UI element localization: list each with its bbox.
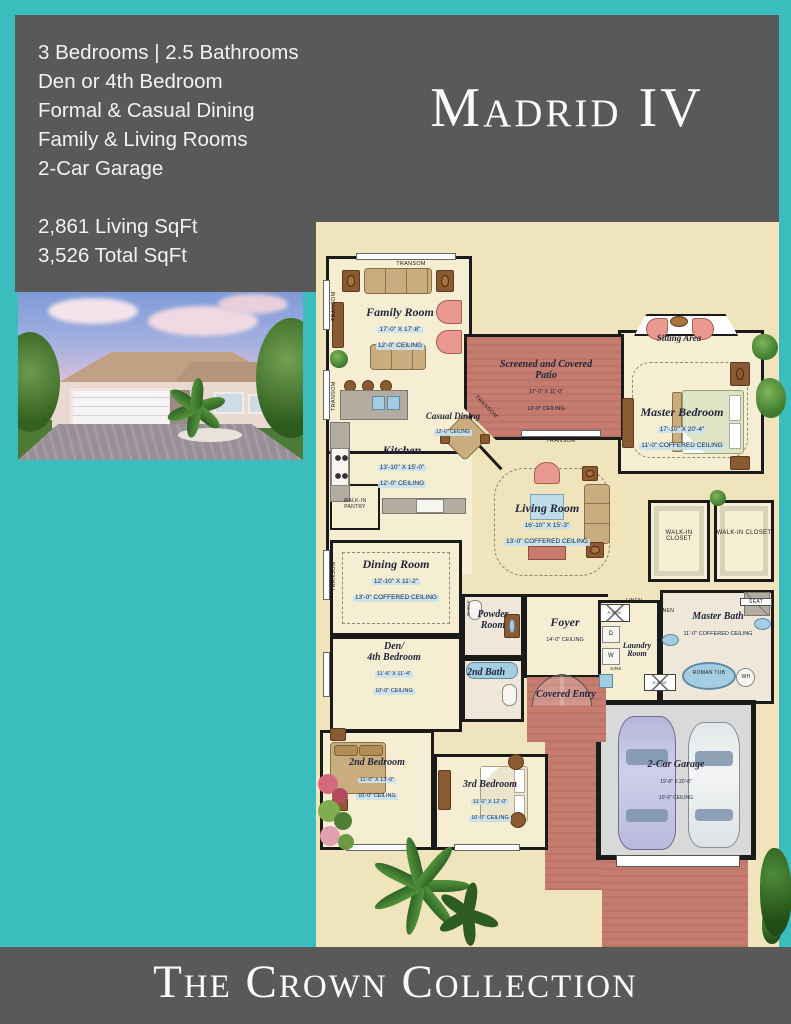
label-dining-room: Dining Room 12'-10" X 11'-2" 13'-0" COFF…: [344, 558, 448, 604]
label-transom: TRANSOM: [526, 438, 596, 444]
label-roman-tub: ROMAN TUB: [688, 670, 730, 676]
lamp-table: [342, 270, 360, 292]
label-linen: LINEN: [620, 598, 648, 604]
sqft-list: 2,861 Living SqFt 3,526 Total SqFt: [38, 212, 198, 270]
sitting-table: [670, 316, 688, 327]
room-ceiling: 13'-0" COFFERED CEILING: [353, 595, 439, 602]
label-patio: Screened and Covered Patio 17'-0" X 11'-…: [488, 360, 604, 415]
feature-list: 3 Bedrooms | 2.5 Bathrooms Den or 4th Be…: [38, 38, 299, 183]
armchair: [534, 462, 560, 484]
sink: [372, 396, 385, 410]
room-name: 2nd Bath: [464, 668, 508, 679]
entry-walkway: [545, 742, 602, 890]
bush: [752, 334, 778, 360]
room-name: Den/: [340, 642, 448, 653]
label-master-bath: Master Bath 11'-0" COFFERED CEILING: [676, 612, 760, 639]
room-ceiling: 10'-0" CEILING: [657, 796, 695, 801]
room-name: Master Bedroom: [624, 406, 740, 419]
room-dims: 19'-8" X 20'-0": [658, 780, 694, 785]
page-title: Madrid IV: [372, 76, 762, 140]
toilet: [502, 684, 517, 706]
window: [323, 652, 330, 697]
living-sqft: 2,861 Living SqFt: [38, 212, 198, 241]
flowers: [320, 826, 340, 846]
feature-item: Family & Living Rooms: [38, 125, 299, 154]
room-name: Kitchen: [356, 444, 448, 457]
window: [323, 280, 330, 330]
label-water-heater: WH: [738, 674, 754, 680]
room-dims: 17'-0" X 11'-0": [527, 390, 565, 396]
room-name: Powder Room: [464, 610, 522, 631]
dresser: [730, 456, 750, 470]
label-transom: TRANSOM: [376, 261, 446, 267]
room-ceiling: 12'-0" CEILING: [525, 407, 567, 413]
label-walkin-closet: WALK-IN CLOSET: [652, 530, 706, 543]
feature-item: 3 Bedrooms | 2.5 Bathrooms: [38, 38, 299, 67]
room-name: 3rd Bedroom: [442, 780, 538, 791]
label-walkin-closet: WALK-IN CLOSET: [716, 530, 772, 536]
label-washer: W: [603, 653, 619, 659]
flowers: [338, 834, 354, 850]
room-walkin-closet-2: [714, 500, 774, 582]
label-living-room: Living Room 16'-10" X 15'-3" 13'-0" COFF…: [496, 502, 598, 548]
window: [356, 253, 456, 260]
label-garage: 2-Car Garage 19'-8" X 20'-0" 10'-0" CEIL…: [616, 760, 736, 804]
label-sink: SINK: [604, 666, 628, 671]
label-kitchen: Kitchen 13'-10" X 15'-0" 12'-0" CEILING: [356, 444, 448, 490]
bush: [756, 378, 786, 418]
bush: [760, 848, 791, 936]
label-transom: TRANSOM: [331, 280, 337, 332]
label-covered-entry: Covered Entry: [530, 690, 602, 701]
room-name: Screened and Covered Patio: [488, 360, 604, 381]
room-ceiling: 12'-0" CEILING: [376, 343, 424, 350]
window: [323, 550, 330, 600]
room-ceiling: 11'-0" COFFERED CEILING: [639, 443, 724, 450]
room-name: Living Room: [496, 502, 598, 515]
room-name: Dining Room: [344, 558, 448, 571]
room-dims: 16'-10" X 15'-3": [523, 523, 572, 530]
room-dims: 17'-0" X 17'-8": [377, 327, 422, 334]
label-transom: TRANSOM: [331, 370, 337, 422]
window: [521, 430, 601, 437]
label-transom: TRANSOM: [331, 550, 337, 602]
laundry-sink: [599, 674, 613, 688]
label-ahu: A.H.U.: [645, 680, 675, 685]
room-ceiling: 10'-0" CEILING: [356, 794, 398, 800]
sink: [387, 396, 400, 410]
room-ceiling: 10'-0" CEILING: [469, 816, 511, 822]
room-name: WALK-IN CLOSET: [652, 530, 706, 543]
label-shelf: SHELF: [466, 596, 471, 620]
window: [346, 844, 410, 851]
roman-tub: [682, 662, 736, 690]
room-name: Sitting Area: [652, 334, 706, 343]
room-dims: 11'-0" X 13'-0": [358, 778, 396, 784]
room-dims: 13'-10" X 15'-0": [378, 465, 427, 472]
room-name: Covered Entry: [530, 690, 602, 701]
label-ahu: A.H.U.: [601, 610, 629, 615]
label-laundry: Laundry Room: [614, 642, 660, 659]
room-dims: 11'-0" X 12'-0": [471, 800, 509, 806]
feature-item: Formal & Casual Dining: [38, 96, 299, 125]
footer-bar: The Crown Collection: [0, 947, 791, 1024]
room-name: WALK-IN CLOSET: [716, 530, 772, 536]
label-family-room: Family Room 17'-0" X 17'-8" 12'-0" CEILI…: [346, 306, 454, 352]
label-3rd-bedroom: 3rd Bedroom 11'-0" X 12'-0" 10'-0" CEILI…: [442, 780, 538, 824]
side-table: [508, 754, 524, 770]
footer-title: The Crown Collection: [0, 955, 791, 1009]
label-pantry: WALK-IN PANTRY: [332, 498, 378, 510]
house-photo: [18, 292, 303, 460]
room-name: 2-Car Garage: [616, 760, 736, 771]
window: [323, 370, 330, 420]
bush: [710, 490, 726, 506]
feature-item: Den or 4th Bedroom: [38, 67, 299, 96]
nightstand: [330, 728, 346, 741]
feature-item: 2-Car Garage: [38, 154, 299, 183]
stove: [331, 448, 349, 486]
driveway: [602, 860, 748, 947]
label-master-bedroom: Master Bedroom 17'-10" X 20'-4" 11'-0" C…: [624, 406, 740, 452]
dresser: [730, 362, 750, 386]
room-dims: 17'-10" X 20'-4": [658, 427, 707, 434]
lamp-table: [436, 270, 454, 292]
label-sitting-area: Sitting Area: [652, 334, 706, 343]
room-dims: 12'-10" X 11'-2": [372, 579, 420, 586]
room-ceiling: 13'-0" COFFERED CEILING: [504, 539, 590, 546]
total-sqft: 3,526 Total SqFt: [38, 241, 198, 270]
cloud: [48, 298, 138, 324]
garage-door-line: [616, 855, 740, 867]
label-powder-room: Powder Room: [464, 610, 522, 631]
cloud: [218, 294, 288, 314]
room-ceiling: 12'-0" CEILING: [434, 430, 472, 435]
label-foyer: Foyer 14'-0" CEILING: [526, 616, 604, 645]
label-casual-dining: Casual Dining 12'-0" CEILING: [422, 412, 484, 438]
room-ceiling: 11'-0" COFFERED CEILING: [682, 632, 755, 638]
room-name: Family Room: [346, 306, 454, 319]
window: [454, 844, 520, 851]
plant: [330, 350, 348, 368]
refrigerator: [416, 499, 444, 513]
room-dims: 11'-6" X 11'-4": [375, 672, 413, 678]
room-ceiling: 10'-0" CEILING: [373, 689, 415, 695]
room-name: 2nd Bedroom: [328, 758, 426, 769]
label-seat: SEAT: [740, 598, 772, 606]
room-ceiling: 12'-0" CEILING: [378, 481, 426, 488]
sofa: [364, 268, 432, 294]
room-ceiling: 14'-0" CEILING: [544, 638, 586, 644]
room-name: 4th Bedroom: [340, 653, 448, 664]
room-name: Casual Dining: [422, 412, 484, 421]
label-den: Den/ 4th Bedroom 11'-6" X 11'-4" 10'-0" …: [340, 642, 448, 697]
flowers: [334, 812, 352, 830]
floor-plan: Family Room 17'-0" X 17'-8" 12'-0" CEILI…: [316, 222, 779, 947]
room-name: Foyer: [526, 616, 604, 629]
room-name: Master Bath: [676, 612, 760, 623]
label-2nd-bath: 2nd Bath: [464, 668, 508, 679]
lamp-table: [582, 466, 598, 481]
label-linen: LINEN: [652, 608, 680, 614]
room-name: Laundry Room: [614, 642, 660, 659]
label-dryer: D: [603, 631, 619, 637]
